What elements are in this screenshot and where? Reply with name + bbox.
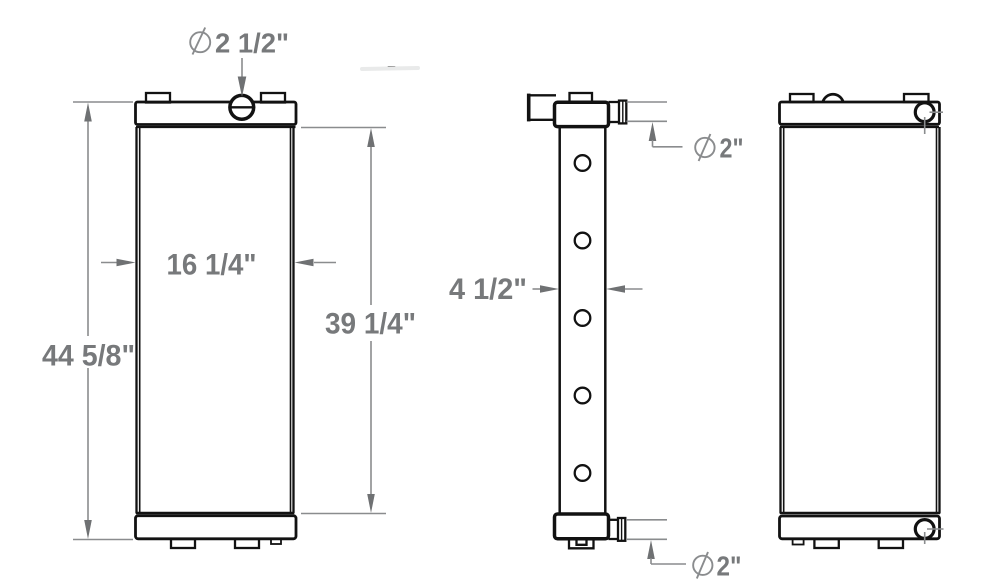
svg-text:2 1/2": 2 1/2" — [215, 28, 289, 59]
svg-text:39 1/4": 39 1/4" — [325, 308, 416, 341]
svg-text:44 5/8": 44 5/8" — [42, 340, 135, 373]
svg-text:16 1/4": 16 1/4" — [167, 249, 257, 282]
svg-text:4 1/2": 4 1/2" — [449, 273, 527, 306]
svg-text:2": 2" — [720, 132, 744, 163]
svg-text:2": 2" — [717, 550, 742, 579]
